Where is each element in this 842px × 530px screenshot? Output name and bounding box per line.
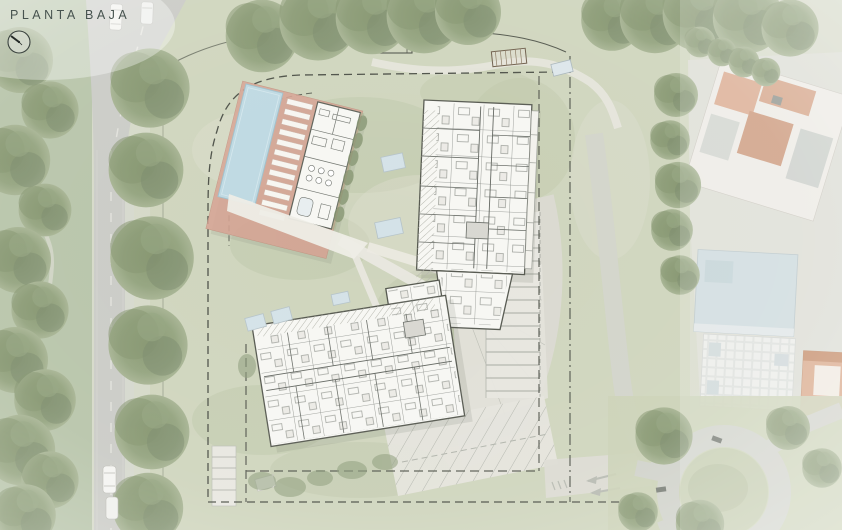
- page-title: PLANTA BAJA: [10, 8, 130, 22]
- north-arrow-icon: [6, 29, 34, 57]
- site-plan-drawing: [0, 0, 842, 530]
- site-plan-canvas: PLANTA BAJA: [0, 0, 842, 530]
- wash-overlay: [0, 0, 842, 530]
